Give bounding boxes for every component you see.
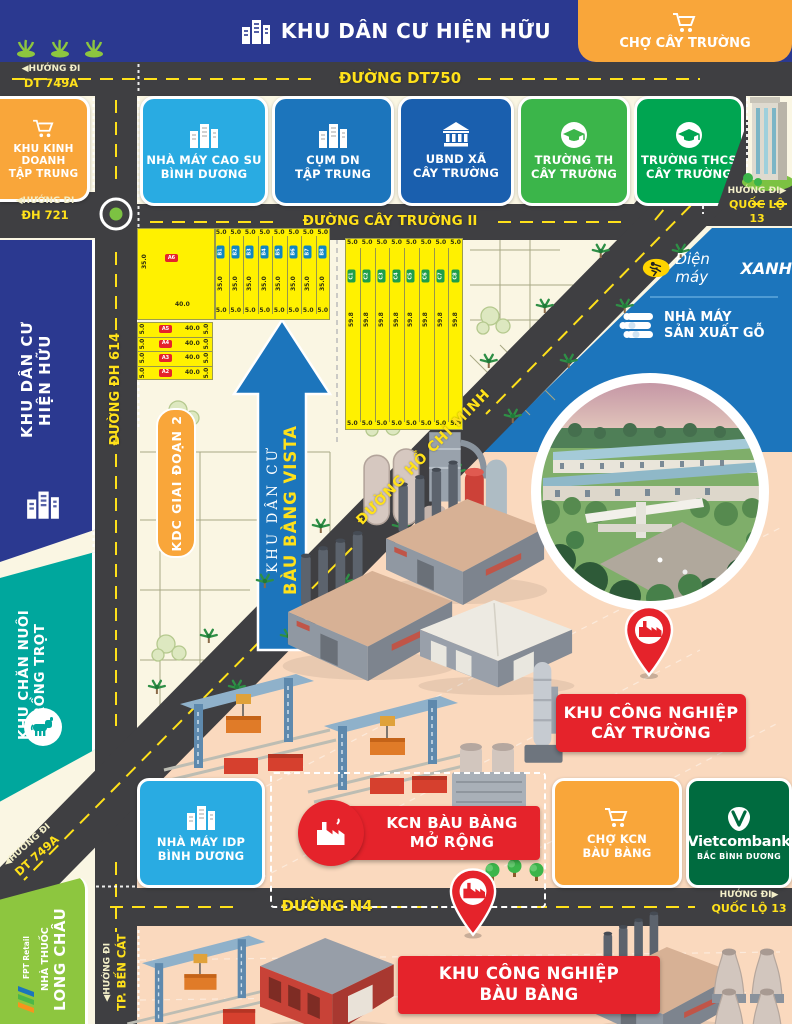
facility-line1: UBND XÃ	[413, 153, 499, 167]
lot-dim: 5.0	[316, 308, 330, 314]
facility-card-4: TRƯỜNG THCÂY TRƯỜNG	[518, 96, 630, 206]
lot-line	[375, 248, 376, 422]
lot-dim: 5.0	[258, 308, 272, 314]
lot-dim: 5.0	[140, 337, 146, 351]
road-label-cay-truong-2: ĐƯỜNG CÂY TRƯỜNG II	[290, 214, 490, 229]
idp-label: NHÀ MÁY IDP	[157, 836, 245, 850]
lot-dim: 5.0	[287, 308, 301, 314]
lot-dim: 35.0	[247, 277, 253, 291]
lot-line	[360, 248, 361, 422]
wood-factory-label: NHÀ MÁY	[664, 310, 765, 326]
lot-dim: 5.0	[272, 308, 286, 314]
vietcombank-sub: BẮC BÌNH DƯƠNG	[697, 852, 781, 861]
pharmacy-label: NHÀ THUỐC LONG CHÂU	[40, 904, 69, 1014]
residential-panel-label: KHU DÂN CƯ HIỆN HỮU	[18, 280, 54, 480]
lot-dim: 5.0	[404, 240, 418, 246]
lot-line	[229, 236, 230, 314]
lot-dim: 40.0	[185, 326, 199, 332]
lot-line	[138, 337, 212, 338]
lot-dim: 5.0	[287, 230, 301, 236]
lot-badge: C6	[422, 270, 430, 283]
direction-ql13-top: HƯỚNG ĐI▶ QUỐC LỘ 13	[722, 186, 792, 226]
lot-dim: 5.0	[301, 308, 315, 314]
buildings-icon	[26, 488, 60, 520]
facility-line1: TRƯỜNG THCS	[641, 154, 737, 168]
business-zone-card: KHU KINH DOANHTẬP TRUNG	[0, 96, 90, 202]
lot-dim: 5.0	[390, 240, 404, 246]
facility-line2: BÌNH DƯƠNG	[146, 168, 261, 182]
buildings-icon	[318, 121, 348, 149]
kcn-expand-banner: KCN BÀU BÀNGMỞ RỘNG	[336, 806, 540, 860]
lot-badge: B2	[231, 246, 239, 259]
lot-dim: 59.8	[349, 313, 355, 327]
facility-card-1: NHÀ MÁY CAO SUBÌNH DƯƠNG	[140, 96, 268, 206]
market-tab-label: CHỢ CÂY TRƯỜNG	[619, 36, 750, 51]
facility-line2: TẬP TRUNG	[295, 168, 371, 182]
kcn-market-card: CHỢ KCNBÀU BÀNG	[552, 778, 682, 888]
lot-dim: 5.0	[434, 240, 448, 246]
pharmacy-panel: NHÀ THUỐC LONG CHÂU FPT Retail	[0, 876, 88, 1024]
factory-pin-cay-truong	[624, 606, 674, 680]
lot-badge: B1	[217, 246, 225, 259]
kcn-market-label: CHỢ KCN	[583, 833, 652, 847]
lot-badge: A3	[159, 354, 172, 362]
tower-illustration	[742, 97, 792, 191]
phase2-label: KDC GIAI ĐOẠN 2	[156, 408, 196, 558]
lot-line	[287, 236, 288, 314]
lot-dim: 59.8	[438, 313, 444, 327]
lot-badge: A4	[159, 340, 172, 348]
lot-dim: 5.0	[419, 240, 433, 246]
cart-icon	[672, 11, 698, 33]
dmx-name: Điện máy	[675, 250, 735, 286]
lot-line	[243, 236, 244, 314]
lot-line	[389, 248, 390, 422]
lot-badge: C5	[407, 270, 415, 283]
factory-badge-icon	[298, 800, 364, 866]
lot-badge: C1	[348, 270, 356, 283]
lot-badge: B4	[260, 246, 268, 259]
road-label-dt750: ĐƯỜNG DT750	[300, 70, 500, 87]
lot-dim: 5.0	[345, 421, 359, 427]
lot-badge: A6	[165, 254, 178, 262]
lot-dim: 35.0	[276, 277, 282, 291]
lot-line	[272, 236, 273, 314]
lot-dim: 5.0	[419, 421, 433, 427]
lot-dim: 59.8	[453, 313, 459, 327]
lot-dim: 35.0	[320, 277, 326, 291]
lot-dim: 5.0	[214, 230, 228, 236]
fpt-retail-logo: FPT Retail	[13, 933, 39, 1013]
project-arrow-label: KHU DÂN CƯ BÀU BÀNG VISTA	[261, 420, 303, 600]
dmx-name-bold: XANH	[741, 259, 792, 278]
lot-dim: 5.0	[140, 322, 146, 336]
buildings-icon	[241, 17, 271, 45]
market-tab: CHỢ CÂY TRƯỜNG	[578, 0, 792, 62]
road-label-n4: ĐƯỜNG N4	[267, 898, 387, 915]
wood-factory-item: NHÀ MÁY SẢN XUẤT GỖ	[618, 310, 765, 343]
banner-title: KHU DÂN CƯ HIỆN HỮU	[281, 19, 551, 43]
lot-dim: 5.0	[214, 308, 228, 314]
lot-dim: 5.0	[390, 421, 404, 427]
facility-card-label: CỤM DNTẬP TRUNG	[295, 154, 371, 182]
facility-line2: CÂY TRƯỜNG	[413, 167, 499, 181]
lot-dim: 5.0	[449, 240, 463, 246]
lot-dim: 5.0	[140, 366, 146, 380]
lot-dim: 5.0	[204, 351, 210, 365]
lot-dim: 59.8	[379, 313, 385, 327]
lot-dim: 40.0	[185, 370, 199, 376]
location-map: KHU DÂN CƯ HIỆN HỮU CHỢ CÂY TRƯỜNG ĐƯỜNG…	[0, 0, 792, 1024]
lot-dim: 35.0	[218, 277, 224, 291]
lot-badge: B8	[318, 246, 326, 259]
lot-badge: C3	[377, 270, 385, 283]
lot-badge: B5	[275, 246, 283, 259]
facility-card-label: UBND XÃCÂY TRƯỜNG	[413, 153, 499, 181]
lot-dim: 35.0	[142, 255, 148, 269]
cart-icon	[604, 806, 630, 828]
lot-dim: 5.0	[229, 230, 243, 236]
lot-dim: 5.0	[301, 230, 315, 236]
lot-dim: 5.0	[204, 322, 210, 336]
facility-card-3: UBND XÃCÂY TRƯỜNG	[398, 96, 514, 206]
vietcombank-icon	[726, 806, 752, 832]
lot-dim: 40.0	[185, 355, 199, 361]
lot-badge: C8	[451, 270, 459, 283]
lot-dim: 5.0	[375, 240, 389, 246]
business-zone-label: KHU KINH DOANH	[0, 143, 87, 168]
lot-badge: B7	[304, 246, 312, 259]
plants-icon	[16, 32, 104, 58]
palm-tree-icon	[313, 520, 329, 533]
logs-icon	[618, 311, 656, 341]
facility-card-label: NHÀ MÁY CAO SUBÌNH DƯƠNG	[146, 154, 261, 182]
lot-dim: 59.8	[423, 313, 429, 327]
lot-line	[301, 236, 302, 314]
lot-dim: 5.0	[204, 337, 210, 351]
facility-line1: TRƯỜNG TH	[531, 154, 617, 168]
facility-line1: CỤM DN	[295, 154, 371, 168]
lot-dim: 5.0	[345, 240, 359, 246]
lot-dim: 35.0	[305, 277, 311, 291]
vietcombank-card: Vietcombank BẮC BÌNH DƯƠNG	[686, 778, 792, 888]
lot-dim: 40.0	[185, 341, 199, 347]
lot-badge: C4	[392, 270, 400, 283]
lot-dim: 5.0	[243, 308, 257, 314]
lot-dim: 5.0	[140, 351, 146, 365]
cart-icon	[32, 118, 56, 138]
idp-factory-card: NHÀ MÁY IDPBÌNH DƯƠNG	[137, 778, 265, 888]
lot-dim: 5.0	[229, 308, 243, 314]
buildings-icon	[189, 121, 219, 149]
government-icon	[442, 121, 470, 148]
residential-panel: KHU DÂN CƯ HIỆN HỮU	[0, 240, 95, 562]
graduation-cap-icon	[560, 121, 588, 149]
direction-ql13-bottom: HƯỚNG ĐI▶ QUỐC LỘ 13	[710, 890, 788, 916]
lot-line	[258, 236, 259, 314]
facility-card-label: TRƯỜNG THCÂY TRƯỜNG	[531, 154, 617, 182]
factory-pin-bau-bang	[449, 868, 497, 940]
palm-tree-icon	[201, 630, 217, 643]
lot-dim: 35.0	[233, 277, 239, 291]
lot-line	[419, 248, 420, 422]
lot-dim: 5.0	[258, 230, 272, 236]
lot-line	[138, 351, 212, 352]
lot-dim: 59.8	[364, 313, 370, 327]
lot-line	[138, 366, 212, 367]
facility-line2: CÂY TRƯỜNG	[531, 168, 617, 182]
lot-badge: A2	[159, 369, 172, 377]
lot-dim: 5.0	[204, 366, 210, 380]
lot-dim: 5.0	[375, 421, 389, 427]
buildings-icon	[186, 803, 216, 831]
lot-badge: B6	[289, 246, 297, 259]
road-label-dh614: ĐƯỜNG ĐH 614	[109, 309, 123, 469]
direction-dh721: ◀HƯỚNG ĐI ĐH 721	[4, 196, 86, 223]
lot-badge: C7	[436, 270, 444, 283]
cow-icon	[24, 708, 62, 746]
lot-badge: C2	[363, 270, 371, 283]
lot-dim: 5.0	[360, 421, 374, 427]
lot-badge: B3	[246, 246, 254, 259]
facility-card-2: CỤM DNTẬP TRUNG	[272, 96, 394, 206]
lot-dim: 59.8	[394, 313, 400, 327]
facility-line1: NHÀ MÁY CAO SU	[146, 154, 261, 168]
lot-dim: 5.0	[316, 230, 330, 236]
lot-line	[316, 236, 317, 314]
lot-dim: 5.0	[360, 240, 374, 246]
panel-divider	[650, 296, 778, 298]
facility-line2: CÂY TRƯỜNG	[641, 168, 737, 182]
dien-may-xanh-logo: Điện máy XANH	[642, 250, 792, 286]
kcn-bau-bang-banner: KHU CÔNG NGHIỆPBÀU BÀNG	[398, 956, 660, 1014]
palm-tree-icon	[149, 681, 165, 694]
facility-card-label: TRƯỜNG THCSCÂY TRƯỜNG	[641, 154, 737, 182]
direction-dt749a-top: ◀HƯỚNG ĐI DT 749A	[8, 64, 94, 91]
lot-dim: 5.0	[272, 230, 286, 236]
lot-dim: 40.0	[175, 302, 189, 308]
lot-line	[434, 248, 435, 422]
vietcombank-name: Vietcombank	[687, 834, 790, 850]
lot-dim: 5.0	[404, 421, 418, 427]
lot-dim: 35.0	[262, 277, 268, 291]
lot-line	[448, 248, 449, 422]
graduation-cap-icon	[675, 121, 703, 149]
lot-line	[404, 248, 405, 422]
lot-dim: 59.8	[408, 313, 414, 327]
direction-ben-cat: ◀HƯỚNG ĐI TP. BẾN CÁT	[103, 917, 130, 1024]
dmx-runner-icon	[642, 255, 670, 281]
kcn-cay-truong-banner: KHU CÔNG NGHIỆPCÂY TRƯỜNG	[556, 694, 746, 752]
lot-dim: 35.0	[291, 277, 297, 291]
lot-dim: 5.0	[243, 230, 257, 236]
lot-badge: A5	[159, 325, 172, 333]
